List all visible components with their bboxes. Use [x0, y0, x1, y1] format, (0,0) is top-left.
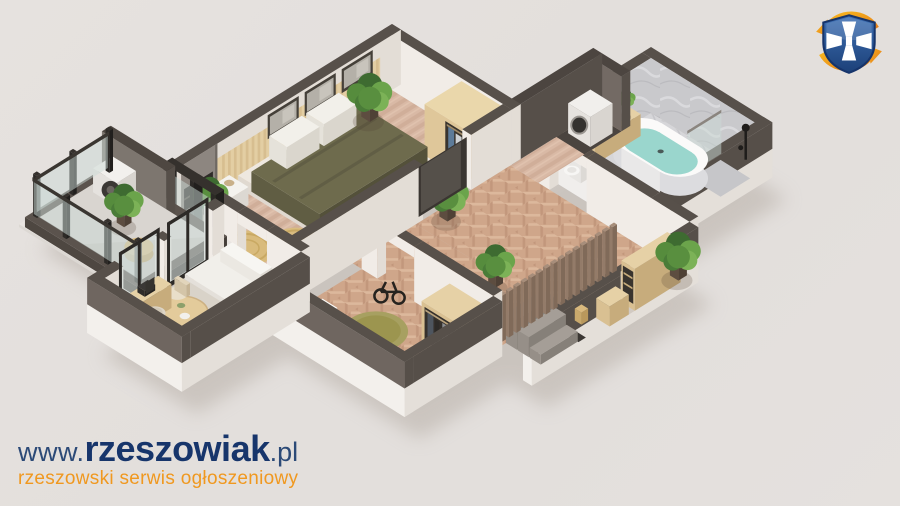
watermark-url: www.rzeszowiak.pl [18, 430, 298, 468]
watermark-url-name: rzeszowiak [85, 428, 270, 469]
site-watermark: www.rzeszowiak.pl rzeszowski serwis ogło… [18, 430, 298, 489]
watermark-url-www: www. [18, 437, 85, 467]
watermark-tagline: rzeszowski serwis ogłoszeniowy [18, 469, 298, 489]
watermark-url-tld: .pl [270, 437, 299, 467]
screenshot-canvas: www.rzeszowiak.pl rzeszowski serwis ogło… [0, 0, 900, 506]
site-shield-logo-icon [812, 8, 886, 76]
